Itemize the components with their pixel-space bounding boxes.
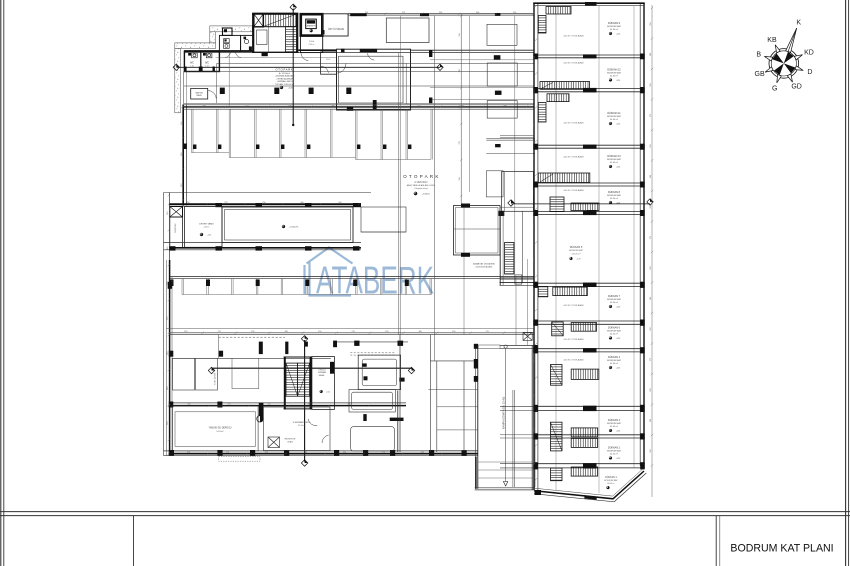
svg-text:-3.20: -3.20 [326, 392, 330, 394]
svg-text:250: 250 [534, 293, 536, 296]
svg-text:44.60 m²: 44.60 m² [610, 74, 618, 77]
svg-text:250: 250 [343, 452, 346, 454]
svg-text:250: 250 [650, 83, 652, 86]
svg-text:275: 275 [459, 141, 461, 144]
svg-text:275: 275 [650, 114, 652, 117]
svg-text:275: 275 [650, 358, 652, 361]
svg-text:44.60 m²: 44.60 m² [610, 332, 618, 335]
svg-text:-2.28(4) Pk: -2.28(4) Pk [289, 227, 298, 229]
svg-text:300: 300 [167, 247, 169, 250]
svg-text:300: 300 [476, 12, 479, 14]
svg-text:ATABERK: ATABERK [316, 260, 434, 303]
svg-text:BODRUM KAT: BODRUM KAT [607, 158, 621, 161]
svg-text:250: 250 [513, 12, 516, 14]
svg-text:ARAÇ PARK ALANLARI+DÜKK.: ARAÇ PARK ALANLARI+DÜKK. [407, 184, 436, 187]
svg-text:250: 250 [534, 157, 536, 160]
svg-text:-3.20: -3.20 [616, 34, 620, 36]
svg-text:DÜKKAN 7: DÜKKAN 7 [608, 295, 621, 298]
svg-text:GB: GB [755, 71, 765, 78]
svg-text:BODRUM KAT: BODRUM KAT [607, 330, 621, 333]
svg-text:44.60 m²: 44.60 m² [610, 362, 618, 365]
svg-text:250: 250 [262, 202, 265, 204]
svg-text:21.00m²: 21.00m² [298, 424, 305, 427]
svg-text:250: 250 [167, 422, 169, 425]
svg-text:250: 250 [187, 452, 190, 454]
svg-text:-3.20: -3.20 [616, 368, 620, 370]
svg-text:250: 250 [251, 331, 254, 333]
svg-text:BODRUM KAT: BODRUM KAT [607, 298, 621, 301]
svg-text:OTOPARK: OTOPARK [275, 68, 293, 72]
svg-text:DÜKKAN 13: DÜKKAN 13 [607, 155, 621, 158]
svg-text:S.KAT ÇİZGİSİ: S.KAT ÇİZGİSİ [214, 372, 217, 385]
svg-text:300: 300 [534, 326, 536, 329]
svg-text:(Otopark alanı): (Otopark alanı) [414, 187, 428, 190]
svg-text:250: 250 [385, 331, 388, 333]
svg-text:300: 300 [300, 202, 303, 204]
svg-text:ÜST ÜYODASI: ÜST ÜYODASI [328, 28, 344, 31]
svg-text:250: 250 [181, 122, 183, 125]
svg-text:275: 275 [224, 202, 227, 204]
svg-text:BODRUM KAT: BODRUM KAT [607, 72, 621, 75]
svg-text:250: 250 [650, 144, 652, 147]
svg-text:250: 250 [167, 282, 169, 285]
svg-text:300: 300 [167, 387, 169, 390]
svg-text:38.00 m²: 38.00 m² [607, 482, 615, 485]
svg-text:MÜŞTEREK: MÜŞTEREK [174, 222, 177, 232]
svg-text:(İZDÜŞÜM ALANI): (İZDÜŞÜM ALANI) [476, 266, 493, 269]
svg-text:250: 250 [650, 22, 652, 25]
svg-text:ASMA KAT İZDÜŞÜMÜ: ASMA KAT İZDÜŞÜMÜ [473, 263, 495, 266]
svg-text:DÜKKAN 5: DÜKKAN 5 [570, 246, 583, 249]
svg-text:44.60 m²: 44.60 m² [610, 161, 618, 164]
svg-text:300: 300 [181, 153, 183, 156]
svg-text:S.SIĞINAĞI/DEPO: S.SIĞINAĞI/DEPO [293, 421, 311, 424]
svg-text:300: 300 [419, 331, 422, 333]
svg-text:DÜKKAN 4: DÜKKAN 4 [608, 356, 621, 359]
svg-text:-3.20: -3.20 [616, 458, 620, 460]
svg-text:250: 250 [265, 452, 268, 454]
svg-text:DÜKKAN 3: DÜKKAN 3 [608, 419, 621, 422]
svg-text:44.6 KY. OTUR.ALANI: 44.6 KY. OTUR.ALANI [564, 62, 584, 65]
svg-text:250: 250 [439, 12, 442, 14]
svg-text:TOPLAM: 1020.00 m²: TOPLAM: 1020.00 m² [275, 83, 295, 86]
svg-text:3.20 m²: 3.20 m² [308, 43, 314, 46]
svg-text:250: 250 [534, 22, 536, 25]
svg-text:-3.20: -3.20 [207, 235, 211, 237]
svg-text:250: 250 [459, 33, 461, 36]
svg-text:250: 250 [167, 352, 169, 355]
svg-text:300: 300 [650, 419, 652, 422]
svg-text:YANGIN SU DEPOSU: YANGIN SU DEPOSU [209, 427, 232, 430]
svg-text:BODRUM KAT: BODRUM KAT [607, 115, 621, 118]
svg-text:DÜKKAN 8: DÜKKAN 8 [608, 191, 621, 194]
svg-text:G: G [772, 85, 777, 92]
svg-text:300: 300 [650, 53, 652, 56]
svg-text:HAVAL.: HAVAL. [319, 374, 326, 377]
svg-text:300: 300 [650, 297, 652, 300]
svg-text:275: 275 [402, 12, 405, 14]
svg-text:KB: KB [767, 37, 777, 44]
svg-text:ASANSÖR: ASANSÖR [307, 24, 316, 27]
svg-text:WC: WC [205, 63, 209, 65]
svg-text:44.60 m²: 44.60 m² [610, 452, 618, 455]
svg-text:D: D [807, 69, 812, 76]
svg-text:-3.20(%): -3.20(%) [422, 194, 430, 196]
svg-text:KD: KD [804, 50, 814, 57]
svg-text:-3.20: -3.20 [616, 431, 620, 433]
svg-text:250: 250 [534, 428, 536, 431]
svg-text:250: 250 [650, 388, 652, 391]
svg-text:DÜKKAN 6: DÜKKAN 6 [608, 327, 621, 330]
svg-text:-3.20: -3.20 [616, 80, 620, 82]
svg-text:WC: WC [190, 63, 194, 65]
svg-text:DEVRE TANKI: DEVRE TANKI [199, 223, 214, 226]
svg-text:250: 250 [459, 105, 461, 108]
svg-text:250: 250 [650, 327, 652, 330]
svg-text:BODRUM KAT: BODRUM KAT [607, 450, 621, 453]
svg-text:44.6 KY. OTUR.ALANI: 44.6 KY. OTUR.ALANI [564, 122, 584, 125]
svg-text:44.6 KY. OTUR.ALANI: 44.6 KY. OTUR.ALANI [564, 156, 584, 159]
svg-text:44.60 m²: 44.60 m² [610, 197, 618, 200]
svg-text:-3.20: -3.20 [577, 259, 581, 261]
svg-text:-3.20: -3.20 [616, 167, 620, 169]
svg-text:250: 250 [267, 404, 270, 406]
svg-text:ODASI: ODASI [287, 440, 293, 443]
svg-text:+SIĞINAK+DEPO: +SIĞINAK+DEPO [276, 80, 293, 83]
svg-text:250: 250 [650, 205, 652, 208]
svg-text:K: K [796, 19, 801, 26]
svg-text:A:1020.00m²: A:1020.00m² [414, 181, 427, 184]
svg-text:300: 300 [331, 105, 334, 107]
svg-text:DÜKKAN 2: DÜKKAN 2 [608, 447, 621, 450]
svg-text:250: 250 [186, 202, 189, 204]
svg-text:300: 300 [304, 452, 307, 454]
svg-text:BODRUM KAT: BODRUM KAT [569, 249, 583, 252]
svg-text:250: 250 [181, 184, 183, 187]
svg-text:275: 275 [534, 259, 536, 262]
svg-text:250: 250 [421, 452, 424, 454]
svg-text:44.6 KY. OTUR.ALANI: 44.6 KY. OTUR.ALANI [564, 189, 584, 192]
svg-text:4.00m²: 4.00m² [204, 226, 210, 229]
svg-text:HİDROFOR: HİDROFOR [285, 438, 296, 441]
svg-text:300: 300 [285, 331, 288, 333]
svg-text:-3.20: -3.20 [616, 338, 620, 340]
svg-text:275: 275 [534, 124, 536, 127]
svg-text:44.6 KY. OTUR.ALANI: 44.6 KY. OTUR.ALANI [564, 35, 584, 38]
svg-text:44.6 KY. OTUR.ALANI: 44.6 KY. OTUR.ALANI [564, 304, 584, 307]
svg-text:275: 275 [218, 331, 221, 333]
svg-text:250: 250 [187, 404, 190, 406]
svg-text:300: 300 [307, 404, 310, 406]
svg-text:300: 300 [534, 191, 536, 194]
svg-text:275: 275 [226, 452, 229, 454]
svg-text:BODRUM KAT: BODRUM KAT [607, 422, 621, 425]
svg-text:250: 250 [650, 266, 652, 269]
svg-text:250: 250 [534, 360, 536, 363]
svg-text:-3.20: -3.20 [616, 124, 620, 126]
svg-text:44.60 m²: 44.60 m² [610, 28, 618, 31]
svg-text:DÜKKAN 11: DÜKKAN 11 [607, 112, 621, 115]
svg-text:BODRUM KAT PLANI: BODRUM KAT PLANI [730, 543, 833, 555]
svg-text:275: 275 [227, 404, 230, 406]
svg-text:300: 300 [503, 105, 506, 107]
svg-text:275: 275 [167, 317, 169, 320]
svg-text:BODRUM KAT: BODRUM KAT [604, 479, 618, 482]
svg-text:44.6 KY. OTUR.ALANI: 44.6 KY. OTUR.ALANI [564, 338, 584, 341]
svg-text:250: 250 [338, 202, 341, 204]
svg-text:44.60 m²: 44.60 m² [610, 301, 618, 304]
svg-text:300: 300 [459, 69, 461, 72]
svg-text:120.00 m²: 120.00 m² [571, 252, 580, 255]
svg-text:3 NOLU: 3 NOLU [318, 369, 326, 371]
svg-text:+ORTAK ALANLAR: +ORTAK ALANLAR [276, 77, 294, 80]
svg-text:GD: GD [791, 84, 802, 91]
svg-text:BODRUM KAT: BODRUM KAT [607, 194, 621, 197]
svg-text:250: 250 [534, 90, 536, 93]
svg-text:B: B [756, 52, 761, 59]
svg-text:275: 275 [650, 236, 652, 239]
svg-text:250: 250 [452, 331, 455, 333]
svg-text:300: 300 [534, 462, 536, 465]
svg-text:275: 275 [382, 452, 385, 454]
svg-text:+DÜKKAN ALANLARI: +DÜKKAN ALANLARI [275, 75, 295, 78]
svg-text:BODRUM KAT: BODRUM KAT [607, 359, 621, 362]
svg-text:250: 250 [167, 212, 169, 215]
svg-text:300: 300 [650, 175, 652, 178]
svg-text:DÜKKAN 12: DÜKKAN 12 [607, 69, 621, 72]
svg-text:DÜKKAN 1: DÜKKAN 1 [605, 476, 617, 479]
svg-text:250: 250 [650, 449, 652, 452]
svg-text:250: 250 [459, 177, 461, 180]
svg-text:275: 275 [352, 331, 355, 333]
svg-text:-3.20: -3.20 [616, 203, 620, 205]
svg-text:DÜKKAN 9: DÜKKAN 9 [608, 22, 621, 25]
svg-text:Y.O.H: Y.O.H [309, 41, 315, 43]
svg-text:250: 250 [347, 404, 350, 406]
svg-text:250: 250 [318, 331, 321, 333]
svg-text:O T O P A R K: O T O P A R K [403, 174, 439, 179]
svg-text:-3.20: -3.20 [616, 307, 620, 309]
svg-text:YANGIN: YANGIN [195, 92, 203, 95]
svg-text:275: 275 [486, 331, 489, 333]
svg-text:275: 275 [245, 105, 248, 107]
svg-text:250: 250 [184, 331, 187, 333]
svg-text:275: 275 [534, 394, 536, 397]
svg-text:SIĞINAK: SIĞINAK [318, 371, 327, 374]
svg-text:250: 250 [534, 225, 536, 228]
svg-text:A: 125.00m²: A: 125.00m² [279, 72, 290, 75]
svg-text:BODRUM KAT: BODRUM KAT [607, 25, 621, 28]
svg-text:250: 250 [202, 105, 205, 107]
svg-text:300: 300 [534, 56, 536, 59]
svg-text:250: 250 [288, 105, 291, 107]
svg-text:44.60 m²: 44.60 m² [610, 118, 618, 121]
svg-text:Ü.O.: Ü.O. [326, 58, 331, 61]
svg-text:44.60 m²: 44.60 m² [610, 425, 618, 428]
svg-text:TANKI: TANKI [196, 94, 202, 97]
svg-text:250: 250 [365, 12, 368, 14]
svg-text:44.6 KY. OTUR.ALANI: 44.6 KY. OTUR.ALANI [564, 359, 584, 362]
svg-text:54.00m³: 54.00m³ [216, 430, 224, 433]
svg-text:275: 275 [417, 105, 420, 107]
svg-text:250: 250 [374, 105, 377, 107]
